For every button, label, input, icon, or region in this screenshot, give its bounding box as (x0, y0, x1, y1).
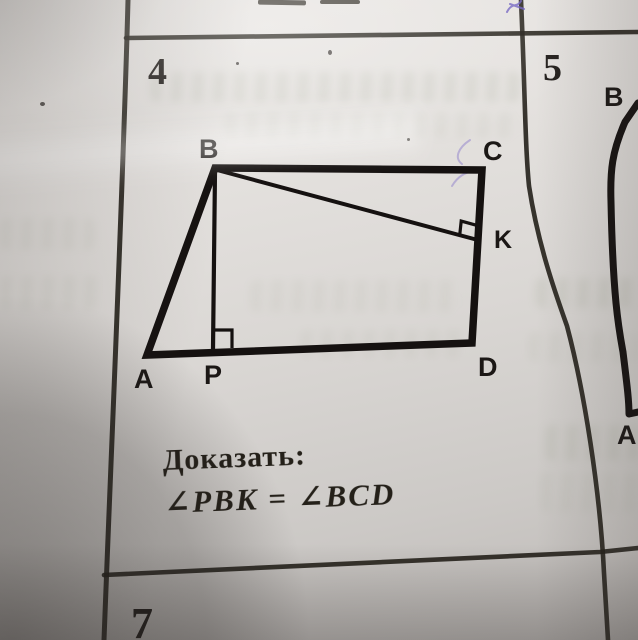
photographed-workbook-page: 4 5 7 B C K D P A B A Доказать: ∠PBK = ∠… (0, 0, 638, 640)
figure5-side (611, 103, 638, 414)
task-text-block: Доказать: ∠PBK = ∠BCD (162, 435, 396, 521)
figure5-vertex-label-b: B (604, 82, 624, 113)
figure5-vertex-label-a: A (617, 420, 637, 451)
geometry-figure-problem5-partial (0, 0, 638, 640)
